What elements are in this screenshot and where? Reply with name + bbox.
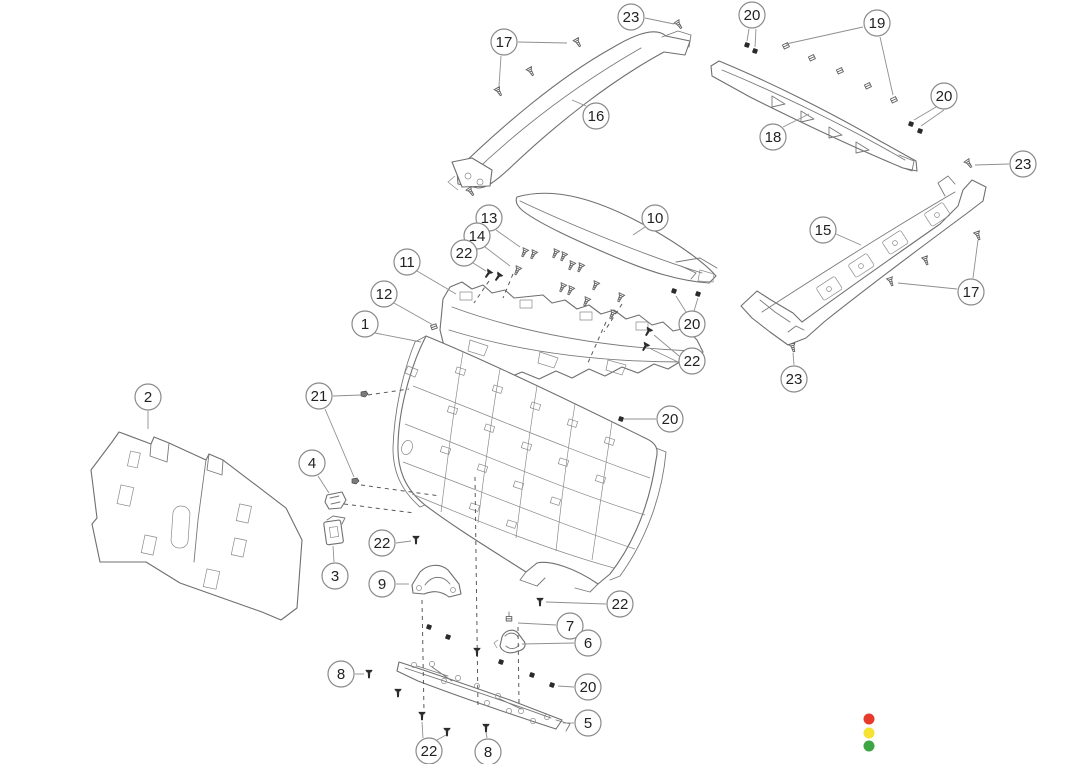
callout-2[interactable]: 2	[135, 384, 161, 429]
screw-icon	[474, 648, 480, 656]
callout-label: 8	[337, 666, 345, 683]
callout-label: 9	[378, 576, 386, 593]
red-dot	[864, 714, 875, 725]
screw-icon	[419, 712, 425, 720]
callout-20[interactable]: 20	[624, 406, 683, 432]
screw-icon	[674, 20, 684, 30]
clip-icon	[529, 672, 535, 678]
callout-label: 2	[144, 389, 152, 406]
callout-22[interactable]: 22	[369, 530, 411, 556]
callout-20[interactable]: 20	[914, 83, 957, 126]
callout-22[interactable]: 22	[416, 722, 446, 764]
clip-icon	[549, 682, 555, 688]
callout-label: 20	[936, 88, 953, 105]
screw-icon	[887, 277, 895, 287]
clip-icon	[361, 391, 368, 397]
callout-label: 7	[566, 618, 574, 635]
screw-icon	[444, 728, 450, 736]
leader-line	[786, 27, 863, 44]
part-2-insulation-pad[interactable]	[91, 432, 302, 620]
leader-line	[518, 623, 556, 625]
screw-icon	[520, 248, 529, 258]
callout-label: 22	[456, 245, 473, 262]
callout-23[interactable]: 23	[781, 353, 807, 392]
clip-icon	[864, 83, 871, 89]
leader-line	[676, 296, 686, 312]
part-15-right-pillar-trim[interactable]	[741, 176, 986, 345]
callout-label: 5	[584, 715, 592, 732]
leader-line	[394, 303, 433, 325]
leader-line	[333, 395, 361, 396]
screw-icon	[964, 159, 974, 169]
callout-1[interactable]: 1	[352, 311, 421, 342]
parts-diagram-canvas: 2317162019202318151723101314221112120222…	[0, 0, 1080, 764]
clip-icon	[426, 624, 432, 630]
clip-icon	[498, 659, 504, 665]
callout-11[interactable]: 11	[394, 249, 456, 294]
part-5-lower-strip[interactable]	[397, 661, 570, 731]
callout-label: 8	[484, 744, 492, 761]
callout-5[interactable]: 5	[563, 710, 601, 736]
callout-label: 22	[374, 535, 391, 552]
leader-line	[546, 602, 606, 604]
screw-icon	[529, 250, 538, 260]
callout-label: 19	[869, 15, 886, 32]
screw-icon	[494, 87, 503, 97]
callout-label: 22	[421, 743, 438, 760]
clip-icon	[618, 416, 624, 422]
leader-line	[422, 722, 423, 738]
callout-label: 23	[623, 9, 640, 26]
callout-20[interactable]: 20	[676, 296, 705, 337]
callout-20[interactable]: 20	[558, 674, 601, 700]
screw-icon	[537, 598, 543, 606]
callout-label: 22	[684, 353, 701, 370]
screw-icon	[493, 272, 503, 282]
leader-line	[485, 247, 510, 266]
leader-line	[522, 643, 574, 644]
callout-label: 21	[311, 388, 328, 405]
callout-3[interactable]: 3	[322, 546, 348, 589]
callout-label: 15	[815, 222, 832, 239]
leader-line	[499, 56, 501, 86]
clip-icon	[808, 55, 815, 61]
leader-line	[880, 37, 893, 95]
callout-23[interactable]: 23	[618, 4, 674, 30]
screw-icon	[576, 263, 585, 273]
leader-line	[793, 353, 794, 365]
screw-icon	[413, 536, 419, 544]
callout-23[interactable]: 23	[975, 151, 1036, 177]
screw-icon	[789, 343, 797, 352]
callout-label: 6	[584, 635, 592, 652]
leader-line	[973, 240, 978, 278]
leader-line	[755, 29, 756, 47]
leader-line	[694, 298, 698, 311]
callout-label: 1	[361, 316, 369, 333]
part-9-bracket[interactable]	[412, 565, 461, 597]
leader-line	[437, 735, 446, 740]
screw-icon	[466, 187, 476, 197]
leader-line	[333, 546, 334, 562]
legend-dots	[864, 714, 875, 752]
exploded-view-diagram: 2317162019202318151723101314221112120222…	[0, 0, 1080, 764]
callout-label: 4	[308, 455, 316, 472]
leader-line	[558, 686, 574, 687]
clip-icon	[695, 291, 701, 297]
screw-icon	[559, 252, 568, 262]
callout-label: 23	[1015, 156, 1032, 173]
screw-icon	[526, 67, 535, 77]
clip-icon	[445, 634, 451, 640]
screw-icon	[395, 689, 401, 697]
part-4-clip[interactable]	[325, 492, 346, 509]
callout-label: 12	[376, 286, 393, 303]
callout-19[interactable]: 19	[786, 10, 893, 95]
callout-layer: 2317162019202318151723101314221112120222…	[135, 2, 1036, 764]
callout-4[interactable]: 4	[299, 450, 329, 493]
callout-12[interactable]: 12	[371, 281, 433, 325]
leader-line	[836, 234, 861, 245]
leader-line	[645, 18, 674, 24]
part-10-applique-panel[interactable]	[516, 193, 717, 283]
callout-8[interactable]: 8	[475, 732, 501, 764]
callout-9[interactable]: 9	[369, 571, 409, 597]
callout-17[interactable]: 17	[491, 29, 567, 86]
clip-icon	[752, 48, 758, 54]
leader-line	[898, 283, 957, 289]
leader-line	[921, 110, 944, 126]
callout-8[interactable]: 8	[328, 661, 364, 687]
clip-icon	[836, 68, 843, 74]
callout-15[interactable]: 15	[810, 217, 861, 245]
screw-icon	[591, 281, 600, 291]
callout-label: 20	[580, 679, 597, 696]
callout-label: 20	[662, 411, 679, 428]
leader-line	[496, 230, 520, 247]
leader-line	[417, 271, 456, 294]
callout-label: 16	[588, 108, 605, 125]
leader-line	[325, 409, 354, 477]
callout-label: 20	[684, 316, 701, 333]
callout-7[interactable]: 7	[518, 613, 583, 639]
yellow-dot	[864, 728, 875, 739]
part-16-upper-left-trim[interactable]	[448, 31, 691, 190]
screw-icon	[922, 256, 930, 266]
callout-label: 22	[612, 596, 629, 613]
callout-label: 17	[496, 34, 513, 51]
green-dot	[864, 741, 875, 752]
screw-icon	[551, 249, 560, 259]
screw-icon	[974, 231, 982, 241]
callout-label: 23	[786, 371, 803, 388]
callout-label: 10	[647, 210, 664, 227]
callout-label: 17	[963, 284, 980, 301]
clip-icon	[744, 42, 750, 48]
part-6-latch-bracket[interactable]	[494, 630, 525, 653]
clip-icon	[506, 617, 512, 621]
part-18-upper-right-trim[interactable]	[711, 61, 917, 171]
callout-label: 3	[331, 568, 339, 585]
callout-label: 18	[765, 129, 782, 146]
leader-line	[473, 263, 486, 271]
callout-label: 20	[744, 7, 761, 24]
callout-label: 11	[399, 254, 415, 271]
screw-icon	[366, 670, 372, 678]
screw-icon	[513, 266, 522, 276]
screw-icon	[483, 724, 489, 732]
part-3-clip[interactable]	[324, 516, 345, 545]
screw-icon	[616, 293, 625, 303]
leader-line	[375, 333, 421, 342]
leader-line	[518, 42, 567, 43]
clip-icon	[917, 128, 923, 134]
leader-line	[975, 164, 1009, 165]
callout-20[interactable]: 20	[739, 2, 765, 47]
clip-icon	[890, 97, 897, 103]
screw-icon	[573, 38, 582, 48]
clip-icon	[352, 478, 359, 484]
clip-icon	[671, 288, 677, 294]
leader-line	[396, 541, 411, 543]
screw-icon	[558, 283, 567, 293]
leader-line	[486, 732, 487, 738]
clip-icon	[908, 121, 914, 127]
screw-icon	[567, 261, 576, 271]
screw-icon	[566, 286, 575, 296]
leader-line	[318, 476, 329, 493]
callout-22[interactable]: 22	[546, 591, 633, 617]
leader-line	[747, 29, 749, 41]
